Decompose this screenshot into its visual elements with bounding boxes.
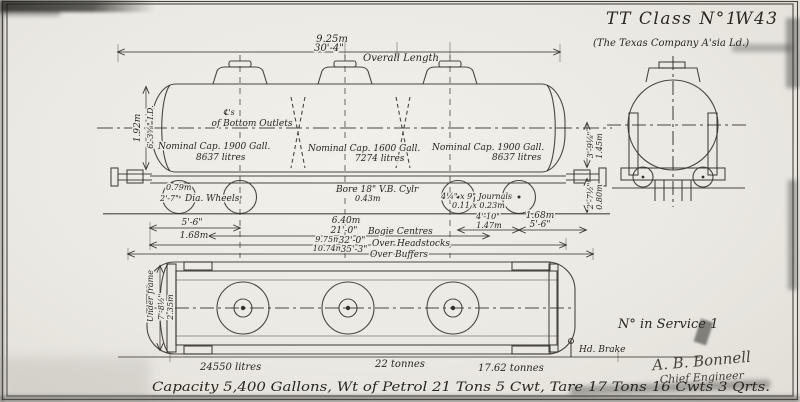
axle-centre [642, 176, 645, 179]
dim-label-id-ft: 6'-3⅝" I.D. [146, 105, 155, 148]
frame-tab [184, 262, 212, 270]
over-buffers-m: 10.74m [313, 244, 344, 253]
end-dome-lid [659, 62, 685, 68]
frame-tab [184, 346, 212, 354]
drawing-title: TT Class N°1 [606, 9, 738, 29]
journal-spacing-m: 1.47m [476, 221, 502, 230]
compartment-litres: 7274 litres [355, 154, 405, 164]
buffer-head [599, 168, 606, 186]
end-view [607, 56, 750, 207]
buffer-spring [574, 170, 590, 183]
outlet-note: of Bottom Outlets [212, 119, 293, 129]
compartment-litres: 8637 litres [492, 153, 542, 163]
outlet-centreline-mark: ℄'s [223, 108, 234, 117]
plan-width-label: Under frame [146, 270, 155, 322]
end-stanchion [629, 113, 638, 175]
end-height-m: 1.45m [595, 133, 604, 159]
axle-centre [518, 196, 521, 199]
capacity-caption: Capacity 5,400 Gallons, Wt of Petrol 21 … [152, 380, 770, 395]
buffer-head [111, 168, 118, 186]
wheel-dia-m: 0.79m [166, 183, 192, 192]
in-service-note: N° in Service 1 [617, 317, 718, 332]
frame-tab [512, 262, 550, 270]
drawing-subtitle: (The Texas Company A'sia Ld.) [593, 38, 749, 49]
plan-width-ft: 7'-8½" [157, 294, 166, 321]
journals-m: 0.11 x 0.23m [452, 201, 505, 210]
end-height-ft: 3'-9⅛" [586, 132, 595, 159]
compartment-litres: 8637 litres [196, 153, 246, 163]
weight-tonnes: 22 tonnes [374, 359, 425, 370]
frame-tab [512, 346, 550, 354]
buffer-height-m: 0.80m [595, 184, 604, 210]
wheelbase-left-m: 1.68m [180, 231, 209, 241]
wheelbase-right-ft: 5'-6" [529, 220, 550, 230]
dim-label-id-m: 1.92m [133, 114, 143, 143]
outlet-centre [346, 306, 350, 310]
end-stanchion [708, 113, 717, 175]
compartment-capacity: Nominal Cap. 1900 Gall. [157, 142, 270, 152]
journals-label: 4¼" x 9" Journals [440, 192, 512, 201]
dim-label-overall-text: Overall Length [363, 53, 439, 64]
tare-tonnes: 17.62 tonnes [478, 363, 544, 374]
plan-width-m: 2.35m [166, 294, 175, 321]
handbrake-label: Hd. Brake [578, 345, 625, 355]
over-headstocks-label: Over Headstocks [372, 239, 450, 249]
drawing-canvas: TT Class N°1 W43 (The Texas Company A'si… [0, 0, 800, 402]
buffer-spring [127, 170, 143, 183]
wheel-dia-ft: 2'-7" [159, 194, 179, 203]
compartment-capacity: Nominal Cap. 1900 Gall. [431, 143, 544, 153]
scanned-drawing-page: TT Class N°1 W43 (The Texas Company A'si… [0, 0, 800, 402]
compartment-capacity: Nominal Cap. 1600 Gall. [307, 144, 420, 154]
over-buffers-label: Over Buffers [370, 250, 428, 260]
bogie-centres-m: 6.40m [332, 216, 361, 226]
over-headstocks-m: 9.75m [315, 235, 341, 244]
wheel-dia-label: Dia. Wheels [184, 194, 240, 204]
over-buffers-ft: 35'-3" [341, 245, 368, 255]
axle-centre [702, 176, 705, 179]
dim-label-overall-ft: 30'-4" [314, 43, 344, 54]
journal-spacing-ft: 4'-10" [475, 212, 500, 221]
drawing-number: W43 [735, 9, 779, 29]
brake-cylinder-m: 0.43m [355, 194, 381, 203]
buffer-height-ft: 2'-7½" [586, 183, 595, 211]
bogie-centres-label: Bogie Centres [367, 227, 433, 237]
wheelbase-left-ft: 5'-6" [181, 218, 202, 228]
total-litres: 24550 litres [199, 362, 261, 373]
